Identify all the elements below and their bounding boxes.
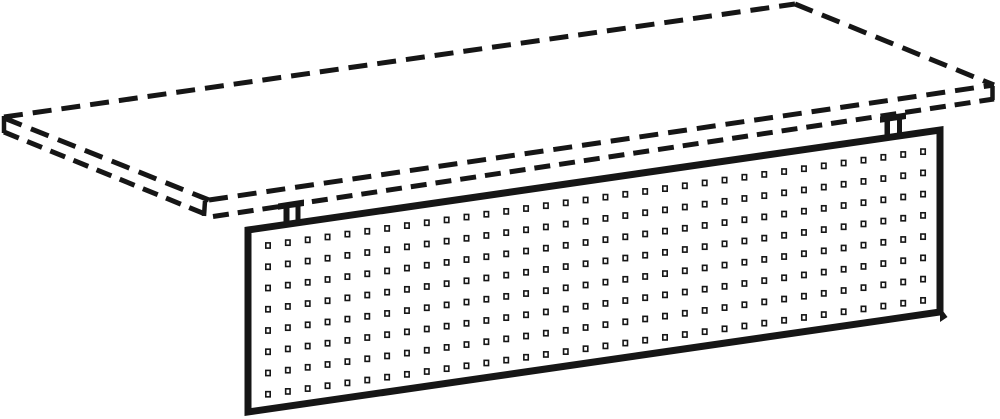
panel-hole [901, 194, 905, 199]
panel-hole [822, 291, 826, 296]
panel-hole [683, 268, 687, 273]
panel-hole [623, 319, 627, 324]
panel-hole [703, 329, 707, 334]
panel-hole [603, 280, 607, 285]
panel-hole [742, 238, 746, 243]
panel-hole [345, 359, 349, 364]
panel-hole [405, 244, 409, 249]
panel-hole [286, 304, 290, 309]
panel-hole [722, 262, 726, 267]
panel-hole [881, 176, 885, 181]
panel-hole [464, 257, 468, 262]
panel-hole [583, 325, 587, 330]
panel-hole [881, 197, 885, 202]
panel-hole [306, 343, 310, 348]
panel-hole [921, 255, 925, 260]
panel-hole [722, 326, 726, 331]
panel-hole [444, 217, 448, 222]
panel-hole [603, 258, 607, 263]
panel-hole [762, 172, 766, 177]
panel-hole [365, 271, 369, 276]
panel-hole [564, 243, 568, 248]
panel-hole [901, 173, 905, 178]
panel-hole [921, 149, 925, 154]
panel-hole [901, 152, 905, 157]
panel-hole [603, 216, 607, 221]
panel-hole [742, 217, 746, 222]
panel-hole [464, 214, 468, 219]
panel-hole [861, 200, 865, 205]
panel-hole [583, 282, 587, 287]
panel-hole [703, 287, 707, 292]
panel-hole [365, 356, 369, 361]
panel-hole [405, 329, 409, 334]
panel-hole [742, 281, 746, 286]
panel-hole [583, 261, 587, 266]
panel-hole [762, 214, 766, 219]
panel-hole [524, 227, 528, 232]
panel-hole [782, 190, 786, 195]
panel-hole [742, 175, 746, 180]
panel-hole [425, 348, 429, 353]
panel-hole [603, 343, 607, 348]
panel-hole [405, 265, 409, 270]
panel-hole [583, 197, 587, 202]
panel-thickness-edge [940, 307, 948, 322]
panel-hole [663, 186, 667, 191]
panel-hole [405, 223, 409, 228]
panel-hole [901, 258, 905, 263]
panel-hole [822, 248, 826, 253]
panel-hole [722, 241, 726, 246]
panel-hole [722, 220, 726, 225]
panel-hole [703, 308, 707, 313]
panel-hole [861, 179, 865, 184]
panel-hole [822, 312, 826, 317]
panel-hole [385, 332, 389, 337]
panel-hole [703, 223, 707, 228]
desktop-edge-front-left [4, 118, 209, 200]
panel-hole [583, 240, 587, 245]
panel-hole [544, 267, 548, 272]
panel-hole [484, 254, 488, 259]
panel-hole [643, 253, 647, 258]
panel-hole [901, 237, 905, 242]
panel-hole [583, 346, 587, 351]
panel-hole [643, 231, 647, 236]
panel-hole [782, 296, 786, 301]
panel-hole [663, 271, 667, 276]
panel-hole [524, 270, 528, 275]
panel-hole [921, 234, 925, 239]
panel-hole [444, 239, 448, 244]
panel-hole [742, 323, 746, 328]
panel-hole [444, 324, 448, 329]
panel-hole [425, 369, 429, 374]
panel-hole [841, 267, 845, 272]
panel-hole [444, 345, 448, 350]
panel-hole [623, 234, 627, 239]
panel-hole [822, 185, 826, 190]
panel-hole [802, 209, 806, 214]
panel-hole [385, 247, 389, 252]
panel-hole [822, 163, 826, 168]
illustration-canvas [0, 0, 1000, 419]
panel-hole [286, 368, 290, 373]
panel-hole [484, 233, 488, 238]
panel-hole [802, 294, 806, 299]
panel-hole [544, 224, 548, 229]
panel-hole [524, 248, 528, 253]
panel-hole [822, 270, 826, 275]
panel-hole [306, 237, 310, 242]
panel-hole [901, 301, 905, 306]
panel-hole [425, 284, 429, 289]
panel-hole [325, 256, 329, 261]
panel-hole [643, 189, 647, 194]
panel-hole [286, 261, 290, 266]
illustration-frame [0, 0, 1000, 419]
panel-hole [504, 336, 508, 341]
desktop-front-left-thickness-line [4, 132, 205, 214]
panel-hole [901, 279, 905, 284]
panel-hole [703, 265, 707, 270]
panel-hole [484, 297, 488, 302]
panel-hole [841, 182, 845, 187]
panel-hole [266, 285, 270, 290]
panel-hole [504, 273, 508, 278]
panel-hole [365, 229, 369, 234]
panel-hole [286, 346, 290, 351]
panel-hole [385, 226, 389, 231]
panel-hole [306, 365, 310, 370]
panel-hole [345, 253, 349, 258]
panel-hole [782, 169, 786, 174]
panel-hole [266, 328, 270, 333]
panel-hole [742, 302, 746, 307]
panel-hole [643, 295, 647, 300]
panel-hole [583, 219, 587, 224]
panel-hole [425, 326, 429, 331]
panel-hole [841, 309, 845, 314]
perforated-modesty-panel [248, 130, 948, 412]
panel-hole [703, 202, 707, 207]
panel-hole [464, 236, 468, 241]
panel-hole [385, 268, 389, 273]
panel-hole [425, 241, 429, 246]
panel-hole [841, 160, 845, 165]
panel-hole [306, 301, 310, 306]
panel-hole [921, 192, 925, 197]
panel-hole [861, 306, 865, 311]
panel-hole [762, 299, 766, 304]
panel-hole [444, 260, 448, 265]
panel-hole [861, 285, 865, 290]
panel-hole [603, 301, 607, 306]
panel-hole [623, 192, 627, 197]
panel-hole [266, 264, 270, 269]
panel-hole [861, 158, 865, 163]
panel-hole [881, 155, 885, 160]
panel-hole [425, 263, 429, 268]
panel-hole [464, 299, 468, 304]
panel-hole [266, 243, 270, 248]
panel-hole [385, 311, 389, 316]
panel-hole [841, 224, 845, 229]
panel-hole [861, 221, 865, 226]
panel-hole [802, 315, 806, 320]
panel-hole [663, 314, 667, 319]
panel-hole [504, 294, 508, 299]
panel-hole [643, 274, 647, 279]
panel-hole [623, 255, 627, 260]
panel-hole [663, 229, 667, 234]
panel-hole [425, 220, 429, 225]
panel-hole [345, 338, 349, 343]
panel-hole [722, 199, 726, 204]
panel-hole [802, 187, 806, 192]
panel-hole [564, 306, 568, 311]
panel-hole [683, 226, 687, 231]
panel-hole [703, 180, 707, 185]
panel-hole [365, 335, 369, 340]
panel-hole [504, 315, 508, 320]
panel-hole [464, 321, 468, 326]
panel-hole [683, 289, 687, 294]
panel-hole [306, 258, 310, 263]
panel-hole [464, 342, 468, 347]
panel-hole [683, 332, 687, 337]
panel-hole [564, 285, 568, 290]
panel-hole [663, 250, 667, 255]
panel-hole [325, 298, 329, 303]
panel-hole [623, 340, 627, 345]
panel-hole [603, 322, 607, 327]
panel-hole [841, 288, 845, 293]
panel-hole [345, 232, 349, 237]
panel-hole [762, 236, 766, 241]
panel-hole [841, 203, 845, 208]
panel-hole [861, 264, 865, 269]
panel-hole [444, 302, 448, 307]
panel-hole [921, 170, 925, 175]
panel-hole [425, 305, 429, 310]
panel-hole [464, 278, 468, 283]
panel-hole [802, 272, 806, 277]
panel-hole [484, 339, 488, 344]
panel-hole [286, 325, 290, 330]
panel-hole [881, 261, 885, 266]
panel-hole [663, 335, 667, 340]
panel-hole [921, 213, 925, 218]
panel-hole [544, 331, 548, 336]
panel-hole [881, 282, 885, 287]
panel-hole [504, 209, 508, 214]
panel-hole [484, 318, 488, 323]
panel-hole [484, 275, 488, 280]
panel-hole [524, 291, 528, 296]
panel-hole [802, 166, 806, 171]
panel-hole [683, 247, 687, 252]
panel-hole [643, 316, 647, 321]
panel-hole [663, 292, 667, 297]
panel-hole [762, 257, 766, 262]
panel-hole [623, 277, 627, 282]
panel-hole [365, 292, 369, 297]
panel-hole [405, 372, 409, 377]
panel-hole [365, 314, 369, 319]
panel-hole [603, 195, 607, 200]
panel-hole [742, 260, 746, 265]
panel-hole [861, 243, 865, 248]
panel-hole [325, 234, 329, 239]
panel-hole [623, 298, 627, 303]
panel-hole [345, 295, 349, 300]
panel-hole [325, 362, 329, 367]
panel-hole [544, 288, 548, 293]
panel-hole [266, 349, 270, 354]
panel-hole [782, 233, 786, 238]
panel-hole [286, 240, 290, 245]
panel-hole [782, 318, 786, 323]
panel-hole [901, 216, 905, 221]
panel-hole [385, 375, 389, 380]
panel-hole [385, 353, 389, 358]
panel-hole [643, 338, 647, 343]
panel-hole [822, 227, 826, 232]
panel-hole [643, 210, 647, 215]
panel-hole [742, 196, 746, 201]
panel-hole [345, 380, 349, 385]
panel-hole [564, 264, 568, 269]
panel-hole [802, 230, 806, 235]
panel-hole [524, 333, 528, 338]
panel-hole [544, 352, 548, 357]
panel-hole [762, 193, 766, 198]
panel-hole [683, 204, 687, 209]
panel-hole [504, 251, 508, 256]
panel-hole [802, 251, 806, 256]
panel-hole [921, 298, 925, 303]
panel-hole [345, 317, 349, 322]
panel-hole [722, 177, 726, 182]
panel-hole [544, 246, 548, 251]
panel-hole [583, 304, 587, 309]
panel-hole [544, 203, 548, 208]
panel-hole [762, 321, 766, 326]
panel-hole [325, 383, 329, 388]
panel-hole [504, 230, 508, 235]
panel-hole [524, 355, 528, 360]
panel-hole [524, 312, 528, 317]
panel-hole [325, 319, 329, 324]
panel-hole [881, 218, 885, 223]
panel-hole [405, 308, 409, 313]
panel-hole [782, 275, 786, 280]
desktop-edge-back-left [4, 4, 795, 117]
panel-hole [325, 341, 329, 346]
panel-hole [881, 303, 885, 308]
panel-hole [603, 237, 607, 242]
panel-hole [385, 290, 389, 295]
panel-hole [504, 358, 508, 363]
panel-hole [841, 245, 845, 250]
panel-hole [564, 200, 568, 205]
panel-hole [683, 311, 687, 316]
panel-hole [544, 309, 548, 314]
panel-hole [444, 366, 448, 371]
panel-hole [782, 254, 786, 259]
panel-hole [564, 349, 568, 354]
panel-hole [365, 377, 369, 382]
panel-hole [564, 221, 568, 226]
panel-hole [266, 370, 270, 375]
panel-hole [564, 328, 568, 333]
panel-hole [782, 211, 786, 216]
panel-hole [663, 207, 667, 212]
panel-hole [266, 307, 270, 312]
panel-hole [405, 350, 409, 355]
panel-hole [444, 281, 448, 286]
panel-hole [703, 244, 707, 249]
panel-hole [266, 392, 270, 397]
panel-hole [762, 278, 766, 283]
panel-hole [623, 213, 627, 218]
panel-hole [484, 360, 488, 365]
panel-hole [306, 322, 310, 327]
panel-hole [524, 206, 528, 211]
panel-hole [325, 277, 329, 282]
panel-hole [881, 240, 885, 245]
panel-hole [405, 287, 409, 292]
panel-hole [286, 389, 290, 394]
panel-hole [365, 250, 369, 255]
panel-hole [722, 305, 726, 310]
panel-hole [464, 363, 468, 368]
panel-hole [722, 284, 726, 289]
panel-hole [286, 283, 290, 288]
panel-hole [683, 183, 687, 188]
desktop-edge-back-right [795, 4, 994, 85]
panel-hole [484, 212, 488, 217]
panel-outline [248, 130, 940, 412]
panel-hole [822, 206, 826, 211]
panel-hole [306, 386, 310, 391]
panel-hole [921, 277, 925, 282]
panel-hole [306, 280, 310, 285]
panel-hole [345, 274, 349, 279]
desktop-front-corner-tick [204, 201, 205, 216]
